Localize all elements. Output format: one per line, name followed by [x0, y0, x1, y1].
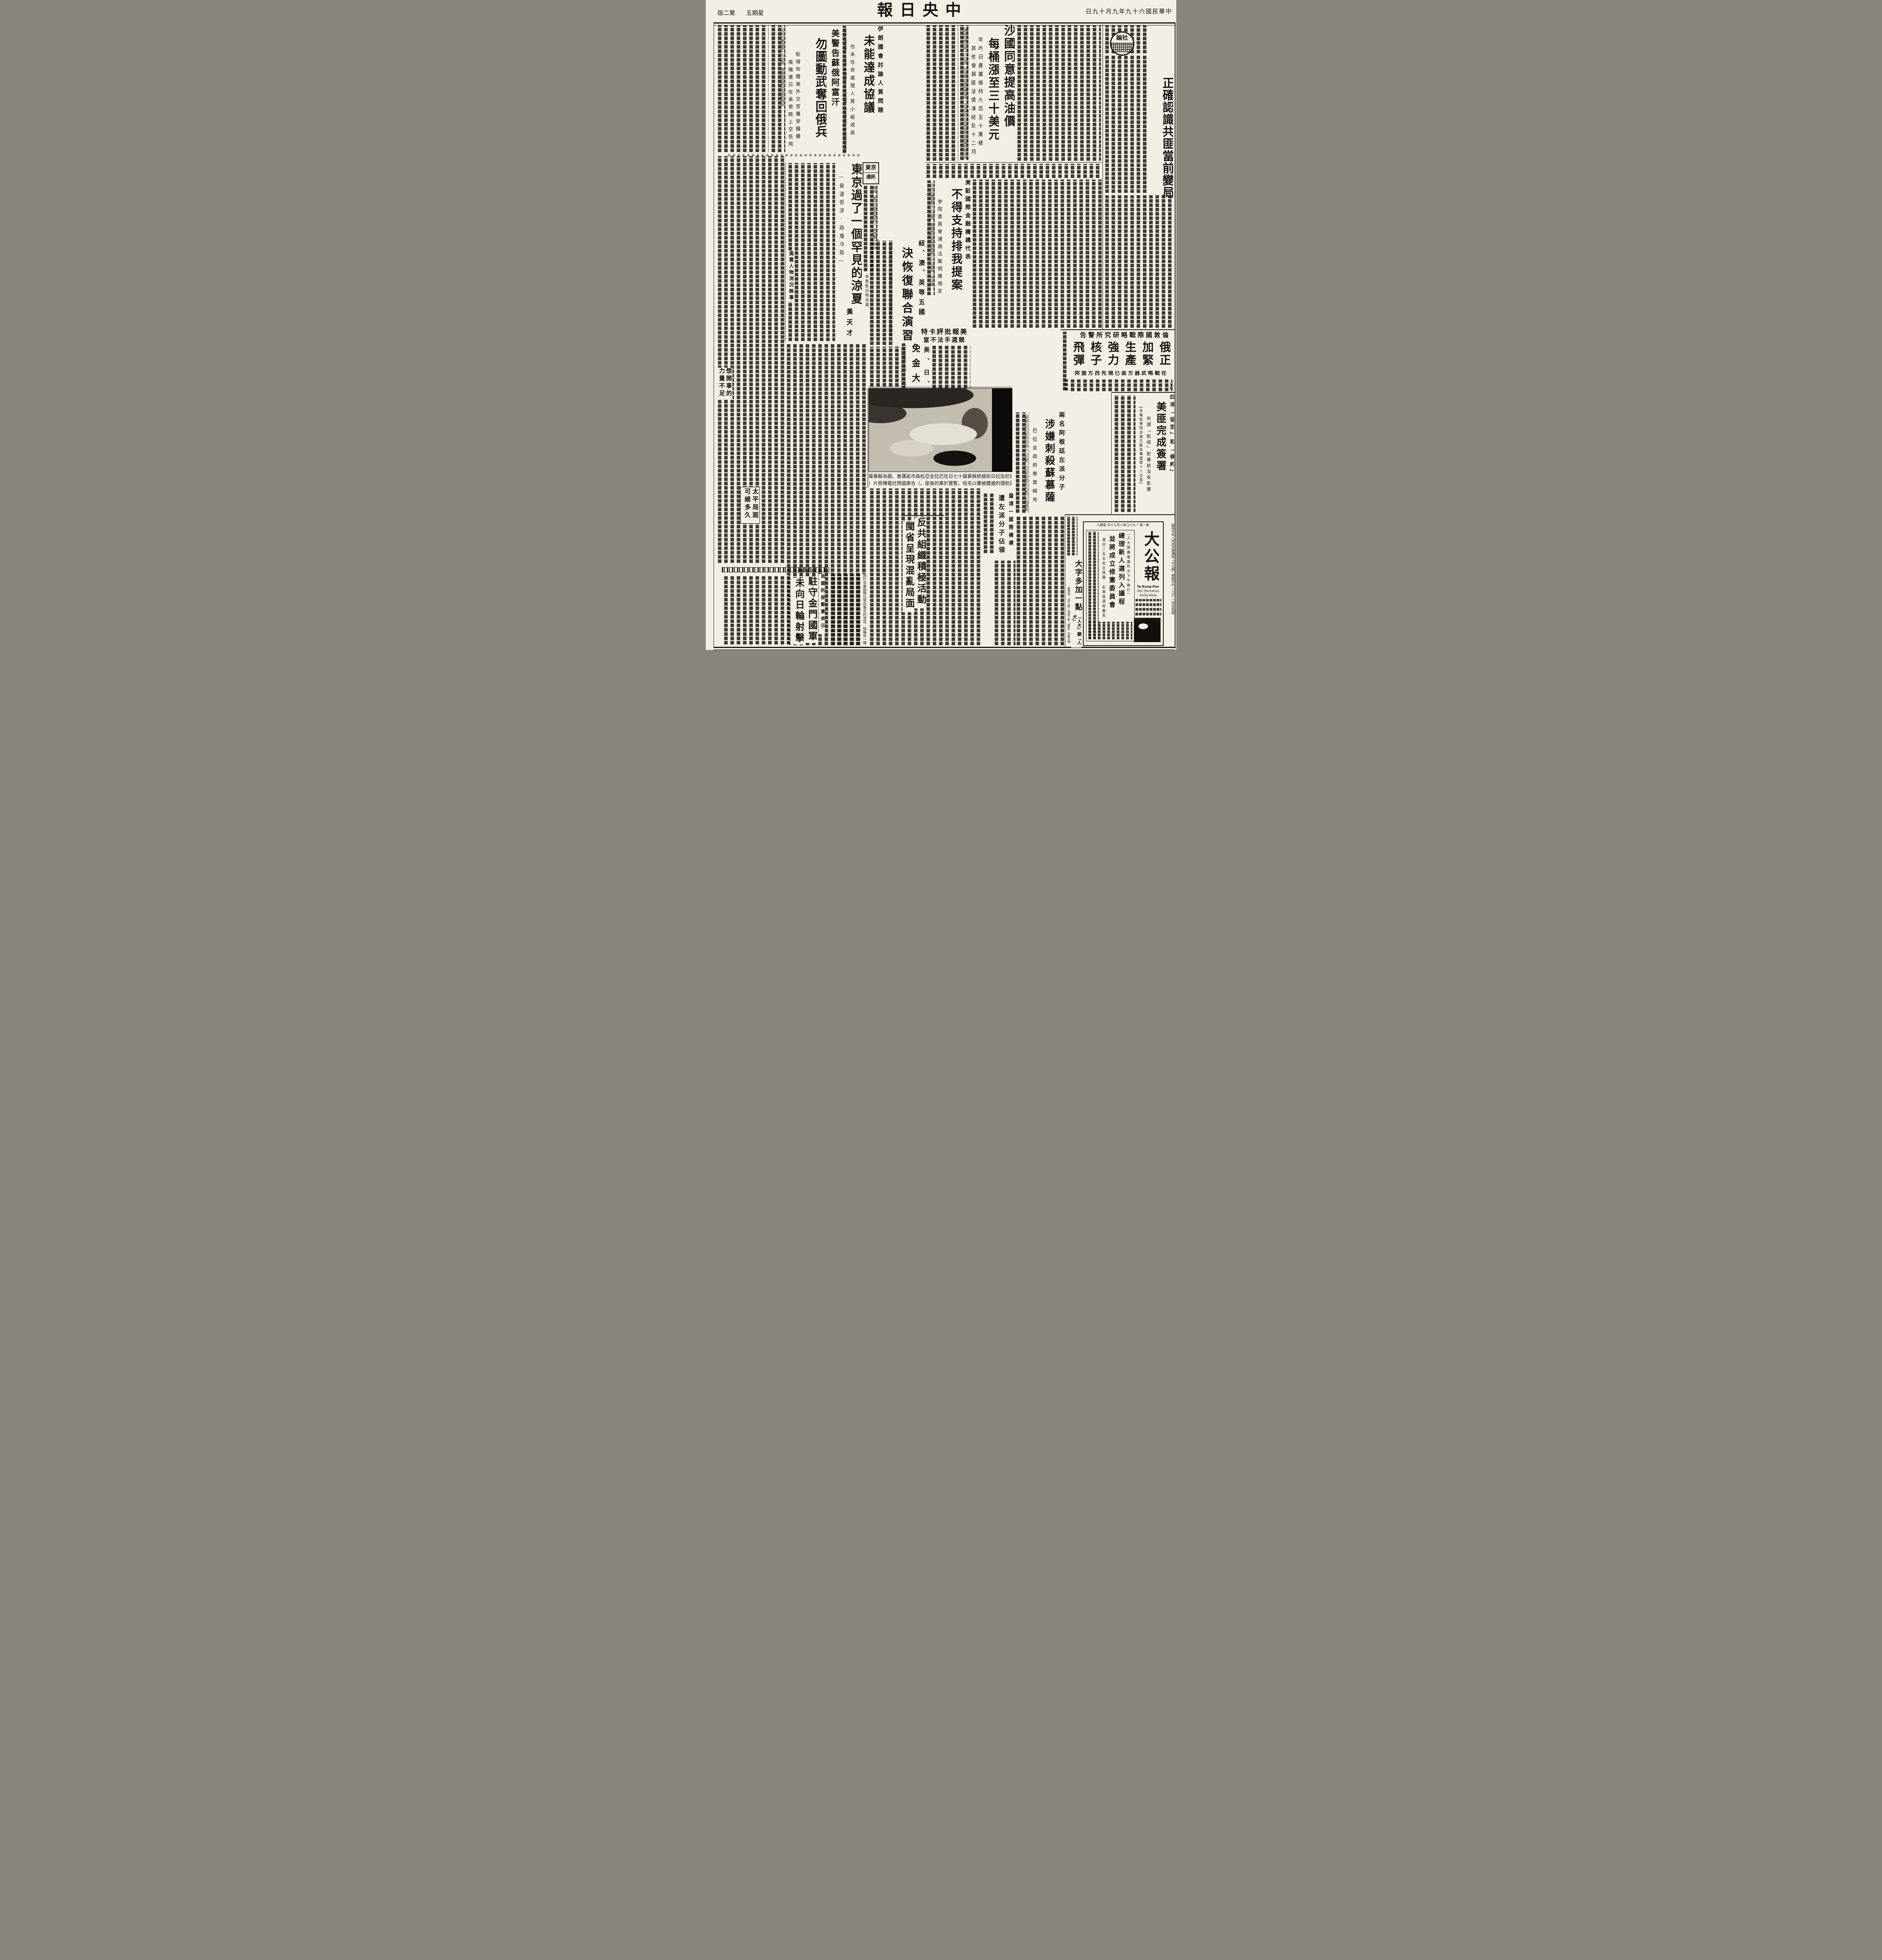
ad-left-headline-1: 大字多加一點 [1071, 560, 1082, 614]
ad-left-headline-2: 「人大」變「人犬」 [1071, 615, 1081, 648]
imf-lead-column: 〔中央社華盛頓十七日電〕美國參院撥款委員會十六日通過一項法案 [929, 180, 934, 295]
oil-lead-column: 〔路透社維也納十八日電〕石油輸出國組織宣布，沙烏地阿拉伯將按照該組織昨晚達成的一… [963, 25, 968, 160]
somoza-photo [868, 388, 1012, 472]
usprc-byline: 【本報駐美特派員王嗣佑華盛頓十八日電】 [1137, 405, 1143, 494]
kinmen-body-texture [723, 575, 790, 645]
newspaper-page: 報日央中 日九十月九年九十六國民華中 五期星 版二第 論社 正確認識共匪當前變局… [706, 0, 1176, 650]
ad-left-note: 他僅說，「四人幫」造成了對「國家」的極大損害 [1066, 587, 1071, 646]
kim-lead-column: 〔合衆國際社漢城十八日電〕美國、日本和澳洲今天開始對韓國施以壓力，要求免除不滿分… [901, 343, 906, 394]
salvador-headline: 遭左派分子佔領 [995, 495, 1005, 559]
takungpao-latin-1: Ta-Kung-Pao [1135, 585, 1161, 589]
exercise-headline: 決恢復聯合演習 [895, 247, 913, 347]
usprc-body-texture [1114, 395, 1135, 513]
photo-caption-line1: 薩慕蘇為圖。害遇區市森松亞圭拉巴在日七十薩慕蘇統總前瓜拉加尼的亡流 [868, 473, 1012, 479]
ad-side-texture [1066, 517, 1077, 556]
tokyo-subhead: —氣溫低涼·政壇冷寂— [836, 174, 844, 268]
below-kim-texture [869, 347, 902, 387]
photo-top-rule [868, 387, 1012, 387]
tokyo-logo-box: 東京 通訊 [863, 162, 879, 184]
imf-headline: 不得支持排我提案 [944, 188, 962, 296]
clipping-kicker: （人大預備會議昨天下午舉行） [1124, 532, 1130, 599]
tokyo-crosshead-2: 想開事的力量不足 [718, 368, 732, 399]
tokyo-body-texture [787, 163, 835, 342]
mid-strip-texture [925, 164, 1102, 179]
tokyo-headline: 東京過了一個罕見的涼夏 [845, 163, 862, 310]
usprc-headline: 美匪完成簽署 [1152, 401, 1166, 475]
missiles-subhead: 邦盟方西先領已面方器武略戰在 [1073, 371, 1170, 378]
us-warning-subhead-1: 駐喀布爾美外交官備受騷擾 [794, 52, 800, 143]
iran-headline: 未能達成協議 [856, 34, 874, 116]
below-salvador-texture [994, 561, 1015, 646]
date-line: 日九十月九年九十六國民華中 [1004, 7, 1172, 15]
iran-lead-column: 〔法新社德黑蘭十八日電〕伊朗國會今天延緩組織一個有關美國人質的特別委員會 [842, 26, 847, 153]
somoza-lead-column: 〔美聯社巴拉圭亞松森十八日電〕巴拉圭當局今天進行大規模搜捕行動 [1023, 412, 1028, 513]
usprc-top-rule [1112, 392, 1175, 393]
takungpao-latin-2: 342 Hennessy Road [1135, 589, 1161, 593]
oil-subhead-1: 年內日產量維持九百五十萬桶 [976, 37, 983, 155]
tokyo-left-rule [785, 163, 785, 341]
usprc-subhead: 所謂「航協」對華航沒有影響 [1144, 416, 1151, 502]
missiles-body-texture [1063, 379, 1172, 392]
ad-outer-caption: 圖為今年八月卅日香港匪「大公報」標題中的「人犬」二字至為明顯。 [1170, 524, 1175, 618]
editorial-body-texture [1104, 195, 1173, 328]
exercise-kicker: 紐、澳、英等五國 [914, 240, 925, 324]
takungpao-latin-3: Hong Kong [1135, 593, 1161, 598]
exercise-lead-column: 〔中央社堪培拉十八日路透電〕澳洲總理佛瑞塞今天告訴國會 [888, 241, 893, 345]
missiles-headline: 俄正加緊生產強力核子飛彈 [1069, 341, 1173, 370]
imf-kicker: 美駐國際金融機構代表 [963, 180, 970, 266]
us-warning-headline: 勿圖動武奪回俄兵 [802, 38, 827, 141]
tokyo-crosshead-1: 風雲人物消沉無事 [787, 251, 794, 302]
us-warning-lead-column: 〔法新社華盛頓十六日電〕據美國國務院高級官員說 [779, 25, 785, 151]
imf-subhead: 參院委員會通過法案明確規定 [936, 199, 942, 298]
tokyo-byline-name: 黃天才 [842, 308, 852, 344]
salvador-kicker: 薩境一國際機構 [1005, 493, 1013, 552]
fujian-headline-1: 反共組織積極活動 [914, 517, 926, 608]
oil-subhead-2: 其他會員國油價凍結到十二月 [969, 45, 976, 162]
weekday-label: 五期星 [746, 9, 770, 16]
clipping-headline-2: 並將成立修憲委員會 [1106, 535, 1115, 612]
page-frame-left [714, 22, 714, 648]
clipping-subhead: 選出二五五名主席團 彭真當選秘書長 [1099, 538, 1105, 619]
editorial-body-texture [1104, 56, 1148, 194]
carter-body-texture [931, 345, 970, 389]
us-warning-subhead-2: 俄機連日在美使館上空低飛 [786, 60, 793, 151]
ad-left-rule [1065, 514, 1065, 647]
iran-subhead: 也未任命處理人質小組成員 [848, 44, 855, 139]
editorial-logo-label: 論社 [1111, 33, 1133, 43]
editorial-left-rule [1103, 24, 1103, 329]
editorial-body-texture [1016, 25, 1101, 162]
somoza-headline: 涉嫌刺殺蘇慕薩 [1039, 419, 1055, 505]
clipping-info-texture [1135, 599, 1161, 616]
top-briefs-texture [925, 25, 958, 162]
usprc-left-rule [1111, 392, 1112, 514]
editorial-headline: 正確認識共匪當前變局 [1149, 77, 1173, 198]
tokyo-logo-line1: 東京 [863, 163, 878, 172]
clipping-topline: 六期星 日十三月八年〇八九一 張一第 [1085, 523, 1161, 528]
kinmen-headline-1: 駐守金門國軍 [805, 576, 817, 643]
page-frame-bottom [714, 647, 1175, 650]
flower-border [722, 567, 829, 572]
mid-right-texture [972, 180, 1102, 328]
carter-headline: 當不法手選競 [921, 337, 968, 344]
somoza-subhead: 巴拉圭政府懸賞緝兇 [1030, 428, 1037, 509]
clipping-body-texture [1088, 622, 1132, 640]
carter-kicker: 特卡評批報美 [921, 328, 968, 336]
ad-left-texture [1015, 516, 1064, 646]
left-briefs-texture [717, 25, 768, 153]
missiles-lead-column: 〔美聯社倫敦十八日電〕 [1168, 379, 1174, 392]
salvador-body-texture [983, 493, 994, 554]
fujian-headline-2: 閩省呈現混亂局面 [903, 521, 914, 612]
editorial-logo-seal: 論社 [1110, 31, 1134, 56]
somoza-kicker: 兩名阿根廷左派分子 [1056, 412, 1065, 498]
kinmen-kicker: 我國防部鄭重表示 [819, 574, 825, 634]
editorial-logo-ornament [1111, 43, 1133, 52]
masthead-title: 報日央中 [877, 2, 975, 22]
fujian-top-rule [901, 515, 944, 516]
missiles-kicker: 告警所究研略戰際國敦倫 [1078, 332, 1172, 339]
oil-headline-line1: 沙國同意提高油價 [999, 24, 1015, 130]
oil-headline-line2: 每桶漲至三十美元 [983, 38, 999, 150]
photo-left-rule [868, 388, 868, 488]
kinmen-lead-column: 對於合衆國際社發自東京的消息，指稱有一艘駛往廈門港的日本貨輪遭到駐守金門國軍部隊… [862, 574, 867, 646]
tokyo-logo-line2: 通訊 [863, 172, 878, 181]
oil-bottom-rule [925, 162, 1102, 163]
tokyo-byline: 本報駐日特派員 [863, 274, 868, 310]
photo-caption-line2: ）片照傳電社際國衆合（。座後的車於置暫，毯毛以覆被體遺的理助其與 [868, 480, 1012, 486]
us-warning-kicker: 美警告蘇俄阿富汗 [828, 29, 840, 110]
missiles-top-rule [1061, 329, 1175, 330]
takungpao-name: 大公報 [1137, 531, 1159, 584]
ad-top-rule [1065, 514, 1175, 515]
missiles-side-texture [1062, 332, 1068, 391]
iran-kicker: 伊朗國會討論人質問題 [875, 26, 883, 118]
usprc-kicker: 四項「協定」和「條約」 [1167, 394, 1174, 488]
clipping-headline-1: 總理新人選列入議程 [1115, 532, 1124, 609]
clipping-ad-art [1134, 618, 1161, 642]
page-number-label: 版二第 [718, 9, 743, 16]
tokyo-crosshead-3: 太平局面可維多久 [740, 487, 760, 524]
kinmen-headline-2: 未向日輪射擊 [792, 578, 804, 644]
